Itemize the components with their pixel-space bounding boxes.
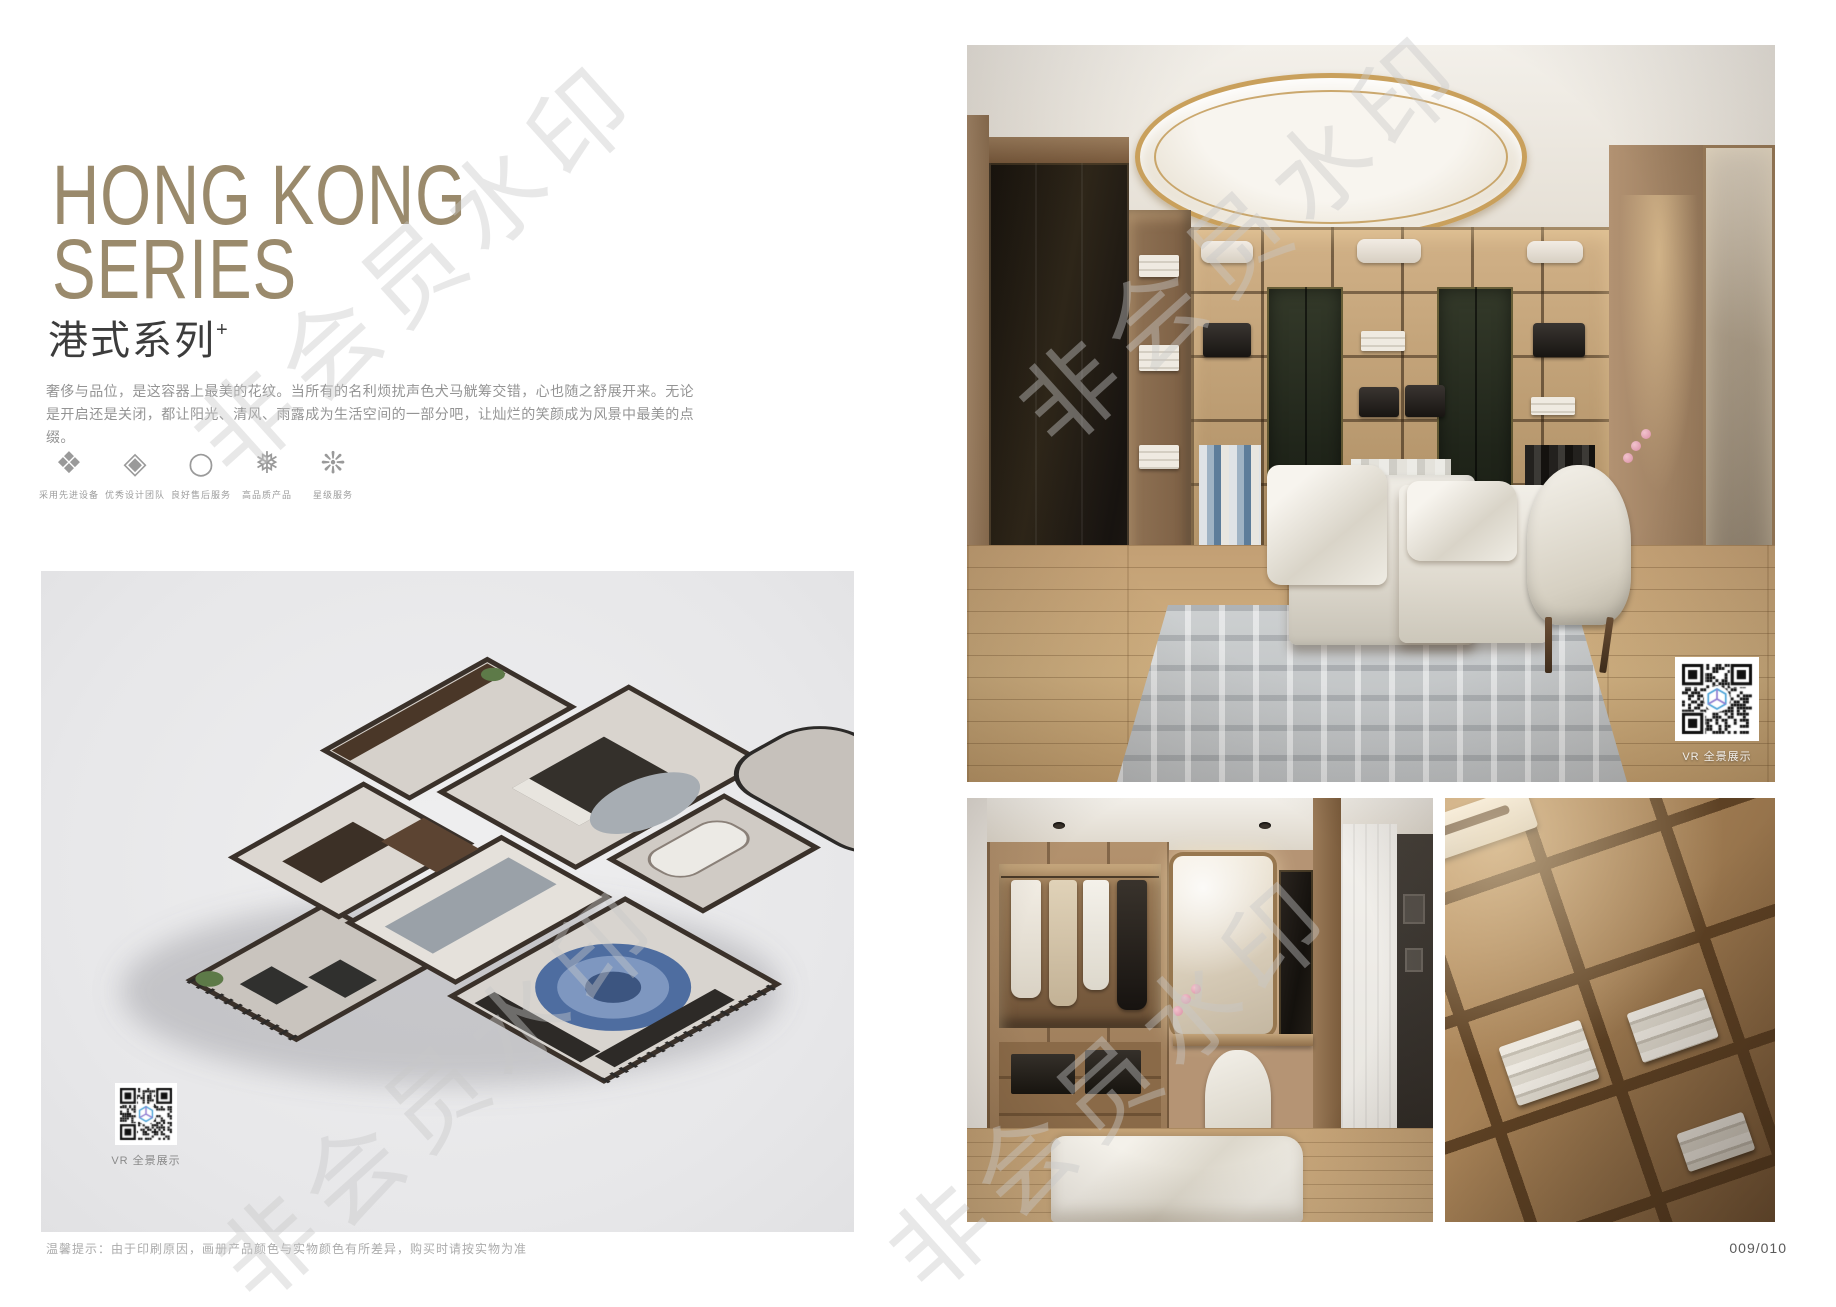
vr-qr-code	[1675, 657, 1759, 741]
feature-item-design-team: ◈ 优秀设计团队	[102, 446, 168, 501]
ring-icon: ○	[168, 446, 234, 482]
feature-label: 优秀设计团队	[102, 488, 168, 501]
page-title: HONG KONG SERIES	[52, 158, 467, 306]
feature-item-quality: ❅ 高品质产品	[234, 446, 300, 501]
series-subtitle: 港式系列+	[48, 308, 230, 366]
snowflake-icon: ❅	[234, 446, 300, 482]
title-line-1: HONG KONG	[52, 158, 467, 232]
feature-item-equipment: ❖ 采用先进设备	[36, 446, 102, 501]
floorplan-image: VR 全景展示	[41, 571, 854, 1232]
star-service-icon: ❊	[300, 446, 366, 482]
title-line-2: SERIES	[52, 232, 467, 306]
feature-label: 采用先进设备	[36, 488, 102, 501]
feature-item-after-sales: ○ 良好售后服务	[168, 446, 234, 501]
floorplan-qr-block: VR 全景展示	[81, 1083, 211, 1168]
series-description: 奢侈与品位，是这容器上最美的花纹。当所有的名利烦扰声色犬马觥筹交错，心也随之舒展…	[46, 380, 694, 449]
showcase-qr-block: VR 全景展示	[1647, 657, 1775, 764]
walk-in-closet-photo: VR 全景展示	[967, 45, 1775, 782]
feature-label: 良好售后服务	[168, 488, 234, 501]
photo-vignette	[967, 798, 1433, 1222]
subtitle-text: 港式系列	[48, 319, 216, 363]
feature-item-star-service: ❊ 星级服务	[300, 446, 366, 501]
footnote: 温馨提示：由于印刷原因，画册产品颜色与实物颜色有所差异，购买时请按实物为准	[46, 1240, 527, 1257]
vr-panorama-label: VR 全景展示	[81, 1152, 211, 1168]
photo-lighting	[1445, 798, 1775, 1222]
dressing-area-photo	[967, 798, 1433, 1222]
catalog-page: HONG KONG SERIES 港式系列+ 奢侈与品位，是这容器上最美的花纹。…	[0, 0, 1836, 1307]
petal-ornament-icon: ❖	[36, 446, 102, 482]
vr-qr-code	[115, 1083, 177, 1145]
feature-label: 星级服务	[300, 488, 366, 501]
feature-list: ❖ 采用先进设备 ◈ 优秀设计团队 ○ 良好售后服务 ❅ 高品质产品 ❊ 星级服…	[36, 446, 366, 501]
vr-panorama-label: VR 全景展示	[1647, 748, 1775, 764]
diamond-ornament-icon: ◈	[102, 446, 168, 482]
page-number: 009/010	[1729, 1240, 1787, 1256]
subtitle-plus: +	[216, 319, 230, 341]
feature-label: 高品质产品	[234, 488, 300, 501]
closet-detail-photo	[1445, 798, 1775, 1222]
